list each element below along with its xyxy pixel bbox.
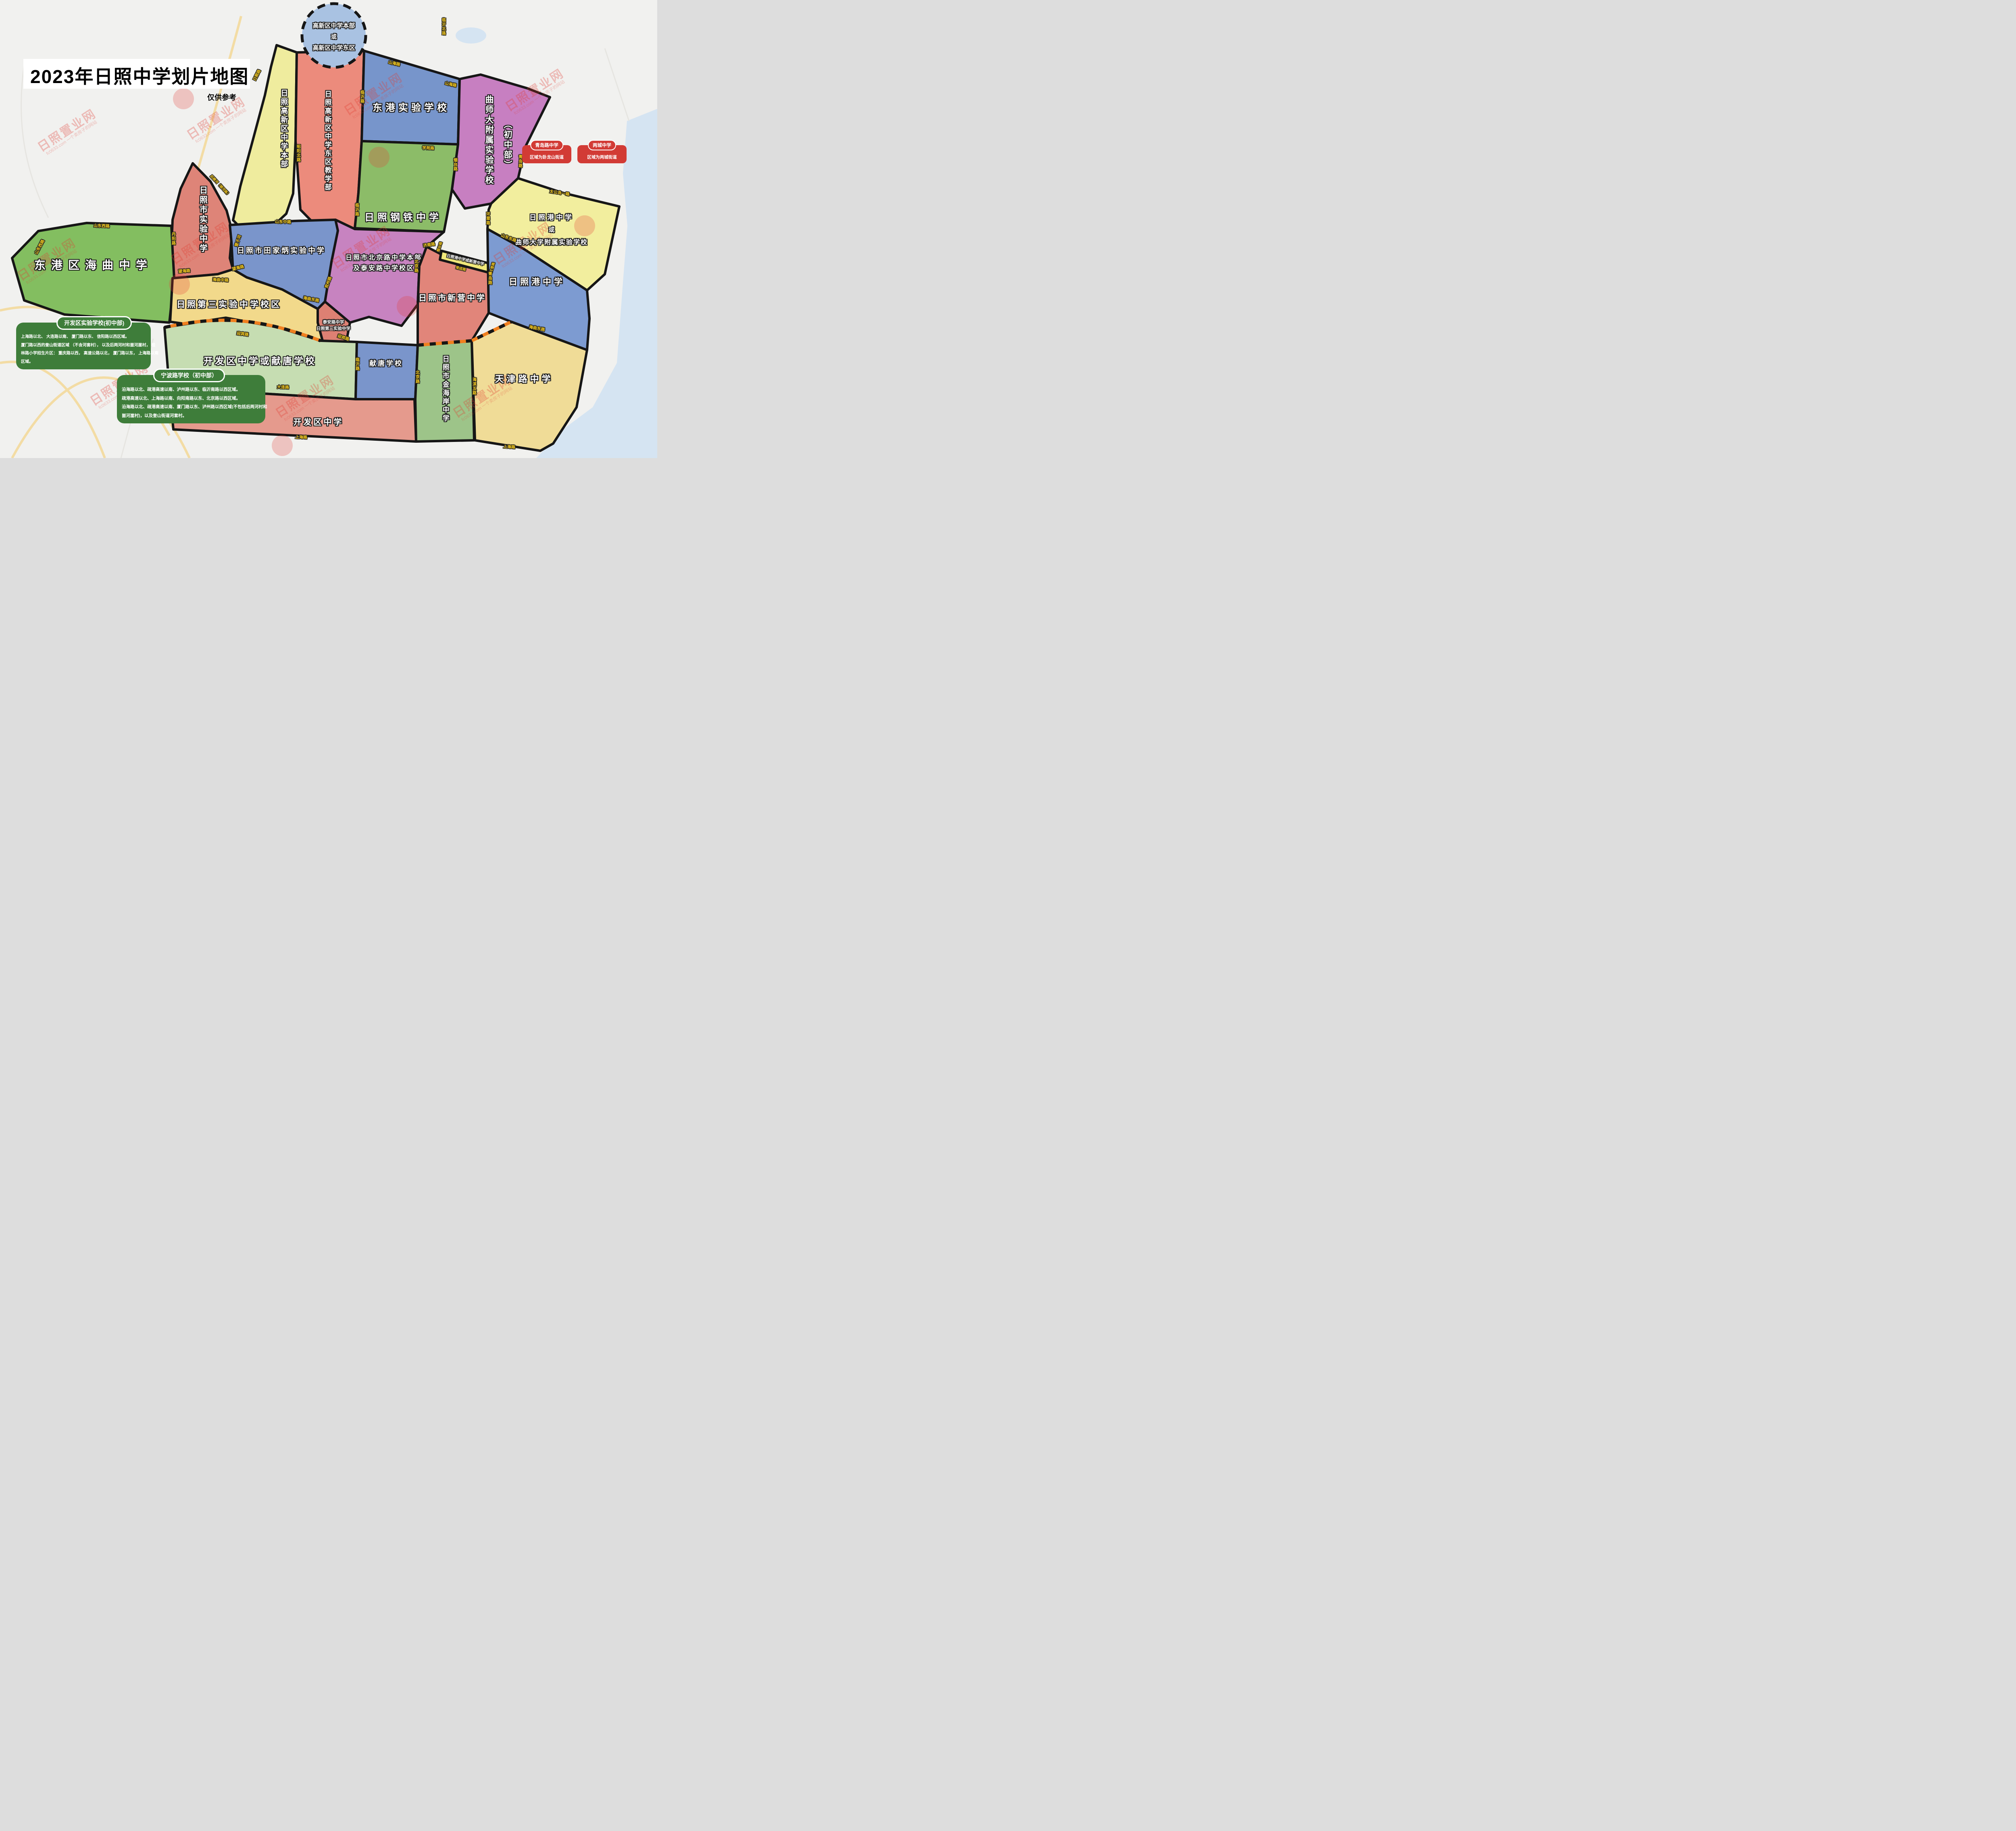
info-ningbolu-line1: 沿海路以北、疏港高速以南、泸州路以东、临沂南路以西区域。	[122, 385, 261, 394]
info-kaifaqu-shiyan-line2: 厦门路以西的奎山街道区域 （不含河套村）， 以及后两河村和崮河崖村， 桂	[21, 342, 147, 350]
info-kaifaqu-shiyan-title: 开发区实验学校(初中部)	[56, 316, 132, 330]
zone-label-kaifaqu-or-xiantang: 开发区中学或献唐学校	[204, 356, 317, 366]
zone-label-port-or-qushida-l1: 日照港中学	[529, 214, 574, 222]
zone-label-beijinglu-l1: 日照市北京路中学本部	[346, 254, 422, 262]
zone-label-kaifaqu: 开发区中学	[294, 418, 344, 427]
zone-label-gangtie: 日照钢铁中学	[364, 212, 442, 223]
info-kaifaqu-shiyan-line1: 上海路以北、 大连路以南、 厦门路以东、 信阳路以西区域。	[21, 333, 147, 342]
info-ningbolu-line4: 崮河崖村)，以及奎山街道河套村。	[122, 412, 261, 421]
road-label-linyi-2: 临沂路	[354, 203, 360, 217]
page-subtitle: 仅供参考	[190, 92, 254, 102]
road-label-shanghai-2: 上海路	[503, 443, 516, 450]
zone-label-xinying: 日照市新营中学	[419, 294, 486, 303]
info-ningbolu-line3: 沿海路以北、疏港高速以南、厦门路以东、泸州路以西区域(不包括后两河村和	[122, 403, 261, 412]
zone-label-circle-line2: 或	[331, 33, 337, 40]
legend-liangcheng-title: 两城中学	[588, 140, 616, 150]
road-label-shandong-middle: 山东中路	[275, 218, 291, 225]
road-label-qingdao-2: 青岛路	[487, 272, 493, 285]
zone-label-taian-l1: 泰安路中学	[323, 320, 344, 325]
zone-label-circle-line1: 高新区中学本部	[312, 22, 355, 29]
road-label-yantai: 烟台路	[452, 158, 458, 171]
zone-label-qushida-fushu-suffix: （初中部）	[502, 120, 512, 171]
road-label-huancui: 环翠路	[485, 212, 491, 225]
zone-label-shiyan: 日照市实验中学	[198, 186, 207, 254]
map-canvas: 2023年日照中学划片地图 仅供参考 日照置业网fc0633.com 一个卖房子…	[0, 0, 657, 458]
info-ningbolu-title: 宁波路学校（初中部）	[153, 369, 225, 382]
road-label-shanghai: 上海路	[295, 433, 308, 440]
zone-label-taian-l2: 日照第三实验中学	[317, 326, 350, 331]
road-label-beijing-2: 北京路	[414, 371, 420, 384]
zone-label-gaoxin-benbu: 日照高新区中学本部	[280, 89, 288, 169]
info-kaifaqu-shiyan-line4: 区域。	[21, 358, 147, 367]
zone-label-qushida-fushu: 曲师大附属实验学校	[484, 95, 494, 186]
road-label-linyi-3: 临沂路	[354, 358, 360, 371]
info-kaifaqu-shiyan-box: 开发区实验学校(初中部) 上海路以北、 大连路以南、 厦门路以东、 信阳路以西区…	[16, 323, 151, 369]
zone-label-sanshiyan: 日照第三实验中学校区	[177, 300, 281, 310]
zone-label-beijinglu-l2: 及泰安路中学校区	[353, 265, 414, 272]
zone-label-gaoxin-dongqu: 日照高新区中学东区教学部	[323, 90, 331, 192]
zone-label-donggang-shiyan: 东港实验学校	[373, 102, 450, 114]
road-label-dalian: 大连路	[277, 383, 289, 390]
legend-qingdaolu-title: 青岛路中学	[530, 140, 563, 150]
zone-label-tianjiabing: 日照市田家炳实验中学	[237, 247, 326, 255]
lake	[456, 27, 486, 44]
zone-label-haiqu: 东港区海曲中学	[34, 259, 153, 272]
info-ningbolu-line2: 疏港高速以北、上海路以南、向阳南路以东、北京路以西区域。	[122, 394, 261, 403]
zone-label-port-or-qushida-l3: 曲师大学附属实验学校	[515, 239, 588, 246]
legend-liangcheng-box: 两城中学 区域为两城街道	[577, 145, 627, 163]
info-ningbolu-box: 宁波路学校（初中部） 沿海路以北、疏港高速以南、泸州路以东、临沂南路以西区域。 …	[117, 375, 265, 423]
zone-label-tianjinlu: 天津路中学	[495, 374, 553, 384]
page-title: 2023年日照中学划片地图	[30, 62, 248, 89]
road-label-haibin-wu: 海滨五路	[471, 377, 477, 395]
info-kaifaqu-shiyan-line3: 林路小学招生片区： 重庆路以西， 高速公路以北， 厦门路以东， 上海路以南	[21, 350, 147, 358]
legend-qingdaolu-box: 青岛路中学 区域为卧龙山街道	[522, 145, 571, 163]
zone-label-port-or-qushida-l2: 或	[548, 226, 554, 233]
road-label-shandong-west: 山东西路	[94, 222, 110, 229]
zone-label-circle-line3: 高新区中学东区	[312, 44, 355, 51]
road-label-xueyuan: 学苑路	[422, 144, 435, 151]
road-label-linyi-north: 临沂北路	[440, 18, 446, 35]
road-label-danyang: 丹阳路	[170, 232, 176, 246]
road-label-beijing: 北京路	[413, 260, 419, 273]
zone-label-xiantang: 献唐学校	[369, 360, 403, 368]
road-label-zhaoyang-north: 昭阳北路	[295, 144, 301, 162]
zone-label-rizhao-port: 日照港中学	[509, 277, 565, 287]
legend-liangcheng-body: 区域为两城街道	[580, 154, 624, 160]
road-label-linyi: 临沂路	[359, 90, 365, 104]
zone-label-jinhaian: 日照市金海岸中学	[441, 355, 449, 423]
road-label-wanghai: 望海路	[178, 267, 191, 274]
region-xiantang	[356, 342, 418, 399]
road-label-haiqu-middle: 海曲中路	[212, 276, 229, 283]
legend-qingdaolu-body: 区域为卧龙山街道	[525, 154, 569, 160]
